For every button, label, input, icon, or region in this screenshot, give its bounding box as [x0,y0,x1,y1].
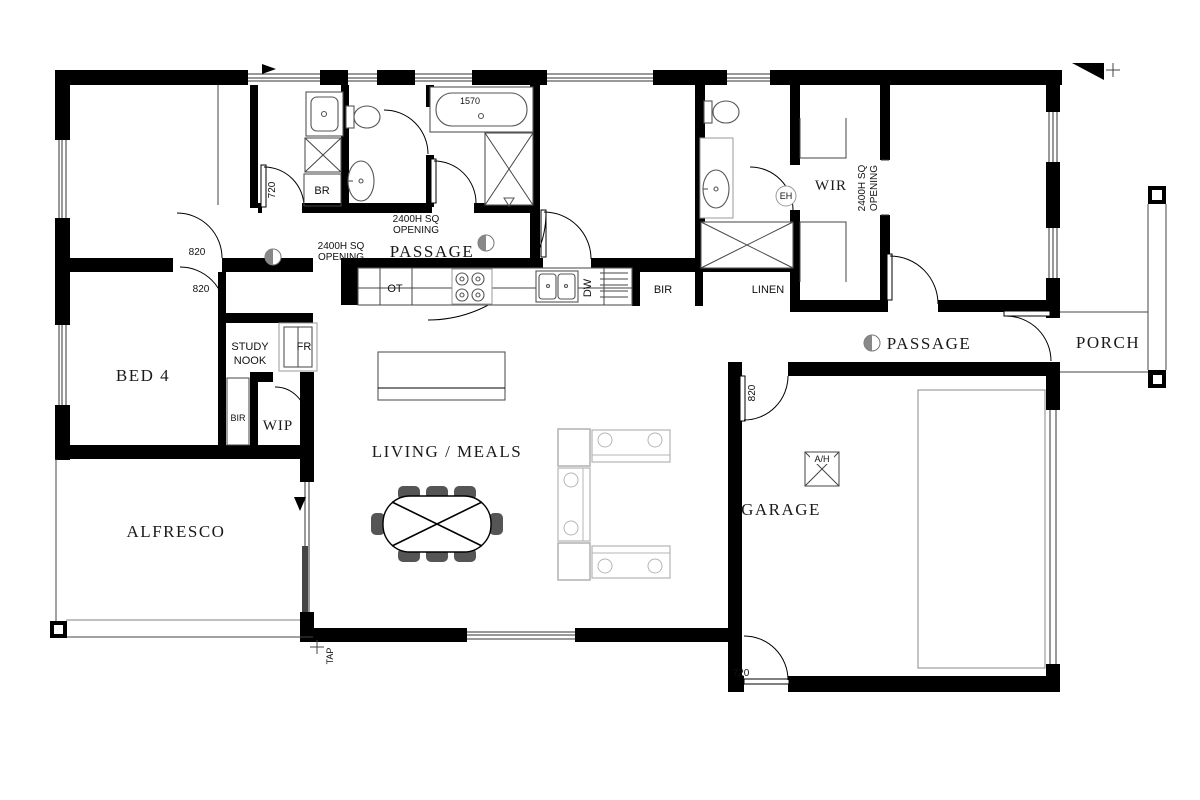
label-oven-tower: OT [387,283,403,295]
label-air-handler: A/H [814,454,829,464]
window [547,70,653,85]
tap-mark [310,640,324,654]
basin-icon [348,161,374,201]
label-broom: BR [314,185,329,197]
room-label-wir: WIR [815,178,847,194]
room-label-living-meals: LIVING / MEALS [372,442,522,461]
window [1046,112,1060,162]
bathroom-fixtures [430,87,533,206]
opening-note: OPENING [318,252,364,263]
label-tap: TAP [325,648,335,665]
label-hot-water: EH [780,191,793,201]
ensuite-fixtures [700,101,796,268]
door-arc [744,636,789,684]
room-label-garage: GARAGE [741,500,821,519]
light-symbol [478,235,494,251]
room-label-porch: PORCH [1076,333,1140,352]
room-label-alfresco: ALFRESCO [127,522,226,541]
window [55,325,70,405]
window [415,70,472,85]
dining-table-icon [371,486,503,562]
dim-garage-rear-door: 720 [733,668,750,679]
opening-note-wir: OPENING [869,165,880,211]
sliding-door [294,482,309,612]
room-label-bed4: BED 4 [116,366,170,385]
opening-note-wir: 2400H SQ [857,164,868,211]
window [55,140,70,218]
label-fridge: FR [297,341,312,353]
window [727,70,770,85]
light-symbol [265,249,281,265]
window [467,628,575,642]
door-direction-icon [294,497,306,511]
door-arc [431,159,476,203]
light-symbol [864,335,880,351]
dim-garage-entry-door: 820 [747,384,758,401]
porch-slab [1060,186,1166,388]
label-linen: LINEN [752,284,784,296]
dim-bath: 1570 [460,96,480,106]
opening-note: OPENING [393,225,439,236]
dim-passage-door-upper: 820 [189,247,206,258]
toilet-icon [704,101,739,123]
shower-icon [701,222,793,268]
wall-opening [881,160,889,215]
window [348,70,377,85]
label-study-nook: NOOK [234,355,267,367]
island-bench [378,352,505,400]
garage-door [1046,410,1060,664]
vanity-icon [700,138,733,218]
bathtub-icon [430,87,533,132]
label-study-nook: STUDY [231,341,269,353]
shower-icon [485,133,533,206]
alfresco-slab [50,459,313,638]
roof-gable-icon [1072,63,1104,80]
bir-bed4-box [227,378,249,445]
door-arc [384,110,428,154]
floor-plan-page: BED 4 ALFRESCO LIVING / MEALS GARAGE PAS… [0,0,1200,800]
room-label-passage-top: PASSAGE [390,242,475,261]
powder-fixtures [346,106,380,201]
laundry-trough-icon [306,92,343,136]
dim-laundry-door: 720 [267,181,278,198]
room-label-wip: WIP [263,418,294,434]
toilet-icon [346,106,380,128]
opening-note: 2400H SQ [393,214,440,225]
cooktop-icon [452,269,492,304]
window [248,70,320,85]
garage-storage-zone [918,390,1045,668]
door-arc [887,254,938,304]
washing-machine-icon [305,138,341,172]
window [1046,228,1060,278]
floor-plan-drawing: BED 4 ALFRESCO LIVING / MEALS GARAGE PAS… [0,0,1200,800]
room-label-passage-right: PASSAGE [887,334,972,353]
door-arc [541,210,591,259]
label-bir-bed4: BIR [230,413,246,423]
sofa-icon [558,429,670,580]
door-arc [1004,311,1051,361]
label-dishwasher: DW [582,278,594,297]
walls [55,70,1062,692]
sink-icon [536,271,578,302]
wir-shelves [800,118,846,282]
label-bir-bed2: BIR [654,284,672,296]
opening-note: 2400H SQ [318,241,365,252]
dim-passage-door-lower: 820 [193,284,210,295]
